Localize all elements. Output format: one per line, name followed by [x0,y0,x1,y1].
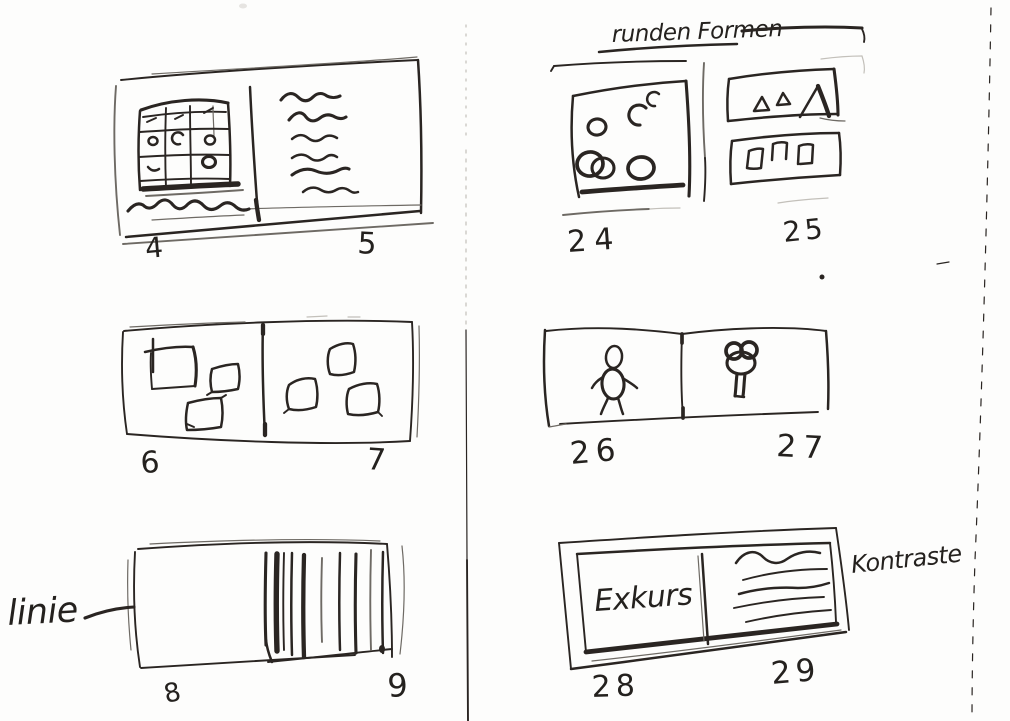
spread-8-9: 8 9 [128,540,409,710]
squares-sketch-left [145,339,240,430]
triangles-panel-sketch [727,69,845,121]
ink-dot [820,275,825,280]
page-divider [698,554,708,644]
page-number-8: 8 [161,677,183,710]
grid-table-sketch [139,100,231,190]
stick-figure-sketch [592,345,637,414]
spread-24-25: runden Formen [551,16,864,279]
spread-border [544,328,828,427]
sketch-paper-sheet: 4 5 [0,0,1010,721]
spread-4-5: 4 5 [114,57,433,265]
text-lines-sketch [281,94,358,193]
page-number-7: 7 [365,442,386,478]
annotation-runden-formen: runden Formen [599,16,864,73]
page-number-27: 27 [776,428,831,467]
center-fold-crease [466,25,468,721]
annotation-kontraste-text: Kontraste [850,540,963,579]
excursus-label: Exkurs [593,577,693,619]
page-number-24: 24 [566,221,622,260]
annotation-linie-text: linie [6,590,78,634]
storyboard-sketch: 4 5 [0,0,1010,721]
page-number-9: 9 [386,666,408,705]
tree-figure-sketch [726,342,757,397]
page-number-4: 4 [144,231,165,265]
right-edge-crease [937,8,991,721]
page-number-26: 26 [569,432,623,472]
annotation-linie: linie [6,590,134,634]
page-divider [250,87,259,220]
spread-26-27: 26 27 [544,328,831,472]
spread-border [122,316,419,443]
page-divider [703,63,706,201]
page-number-29: 29 [770,652,822,692]
page-number-25: 25 [781,212,828,249]
spread-6-7: 6 7 [122,316,419,481]
page-number-6: 6 [140,445,161,481]
page-divider [681,334,683,418]
annotation-runden-formen-text: runden Formen [611,16,782,48]
page-divider [263,323,265,436]
circles-page-sketch [572,81,690,197]
spread-border [114,57,433,244]
vertical-lines-sketch [265,550,385,662]
squares-sketch-right [284,343,382,416]
text-lines-sketch [734,552,831,622]
page-number-28: 28 [591,668,640,705]
spread-28-29: Exkurs 28 29 [559,528,849,705]
page-number-5: 5 [357,226,378,262]
small-squares-panel-sketch [730,133,840,184]
scan-smudge [239,4,247,9]
caption-bar-sketch [128,184,249,220]
